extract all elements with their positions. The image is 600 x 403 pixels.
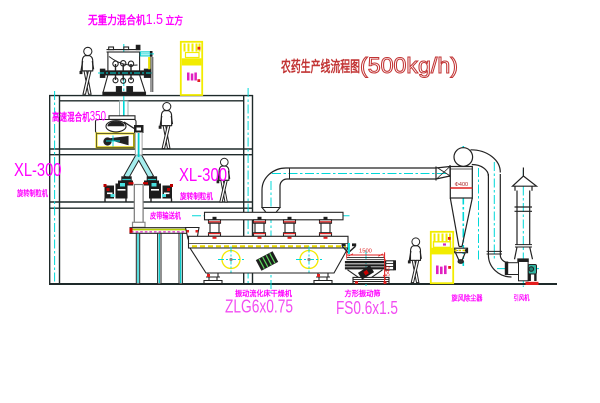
svg-text:旋转制粒机: 旋转制粒机 [179,191,213,201]
svg-text:(500kg/h): (500kg/h) [360,53,458,78]
svg-text:ZLG6x0.75: ZLG6x0.75 [225,297,293,317]
svg-text:FS0.6x1.5: FS0.6x1.5 [336,298,398,318]
svg-text:方形振动筛: 方形振动筛 [345,288,381,298]
svg-text:XL-300: XL-300 [14,159,62,180]
svg-text:农药生产线流程图: 农药生产线流程图 [280,58,360,76]
svg-text:引风机: 引风机 [514,293,530,302]
svg-text:1500: 1500 [359,248,372,254]
svg-text:高速混合机350: 高速混合机350 [52,109,106,124]
svg-text:旋风除尘器: 旋风除尘器 [451,294,483,303]
svg-text:XL-300: XL-300 [179,164,227,185]
svg-text:旋转制粒机: 旋转制粒机 [16,188,48,198]
svg-text:540: 540 [385,266,392,277]
svg-text:皮带输送机: 皮带输送机 [149,211,181,221]
svg-text:Φ400: Φ400 [455,182,469,188]
